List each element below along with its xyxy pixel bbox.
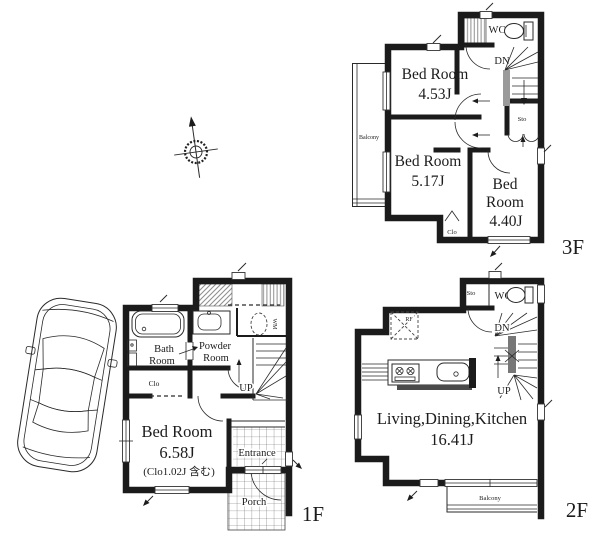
car-mirror-right [107,359,117,367]
toilet-icon-3f [505,22,534,40]
wc-door-2f [468,308,492,332]
porch-label-1f: Porch [242,497,267,508]
clo-label-1f: Clo [149,379,160,388]
bath-label1-1f: Bath [154,344,175,355]
bath-label2-1f: Room [149,356,175,367]
roof-hatch-1f [199,284,284,306]
bedroom1-size-3f: 4.53J [418,86,451,103]
closet-3f: Clo [445,211,459,236]
bedroom3-door-3f [488,150,510,173]
sto-label-2f: Sto [467,290,476,297]
powder-room-1f: Powder Room [193,311,232,364]
floor-plan-2f: Balcony Sto WC [355,263,589,522]
floor-plan-3f: Balcony DN WC [353,3,585,259]
powder-label1-1f: Powder [199,341,232,352]
up-label-2f: UP [497,386,511,397]
balcony-2f: Balcony [447,486,537,512]
stairs-3f: DN [494,47,538,106]
bathtub-icon-1f [132,311,184,337]
rf-label-2f: RF [405,317,413,323]
hall-doors-3f [455,94,490,148]
floorplan-image: Balcony DN WC [0,0,600,548]
bedroom-name-1f: Bed Room [141,422,212,441]
washing-machine-1f: WM [251,313,277,335]
bedroom1-name-3f: Bed Room [402,66,469,83]
bedroom3-name2-3f: Room [486,194,524,211]
up-label-1f: UP [239,383,253,394]
stairwell-hatch-3f [464,18,486,43]
entrance-1f: Entrance [229,421,285,466]
entrance-label-1f: Entrance [238,448,276,459]
storage-3f: Sto [508,116,539,147]
wm-label-1f: WM [271,319,277,331]
bedroom-size-1f: 6.58J [159,443,195,462]
wc-label-3f: WC [489,25,506,36]
bedroom2-name-3f: Bed Room [395,153,462,170]
toilet-icon-2f [507,287,533,303]
porch-1f: Porch [228,470,285,530]
stairs-2f: DN UP [494,313,537,400]
ldk-name-2f: Living,Dining,Kitchen [377,409,527,428]
floor-plan-1f: Porch Entrance [119,263,324,530]
car-mirror-left [25,346,35,354]
bedroom3-size-3f: 4.40J [489,213,522,230]
fridge-2f: RF [391,312,418,339]
sink-icon-1f [193,311,230,334]
clo-label-3f: Clo [447,229,456,236]
stairs-1f: UP [237,338,289,400]
walls-thin-1f [237,308,289,336]
balcony-2f-label: Balcony [479,495,501,502]
sto-label-3f: Sto [518,116,527,123]
dn-label-2f: DN [494,323,510,334]
kitchen-counter-2f [362,358,476,390]
north-arrow [188,116,196,127]
floor-label-1f: 1F [302,502,324,526]
dn-label-3f: DN [494,56,510,67]
powder-label2-1f: Room [203,353,229,364]
bedroom3-name1-3f: Bed [493,176,518,193]
car-top-view-icon [8,294,125,476]
bath-door-1f [179,342,198,360]
bedroom-door-1f [198,396,223,421]
bedroom2-size-3f: 5.17J [411,173,444,190]
ldk-size-2f: 16.41J [430,430,474,449]
bedroom-note-1f: (Clo1.02J 含む) [143,464,215,478]
bathroom-1f: Bath Room [128,311,185,367]
balcony-3f: Balcony [353,64,386,207]
compass-icon [169,113,221,181]
floor-label-2f: 2F [566,498,588,522]
balcony-3f-label: Balcony [359,135,379,141]
floor-label-3f: 3F [562,235,584,259]
